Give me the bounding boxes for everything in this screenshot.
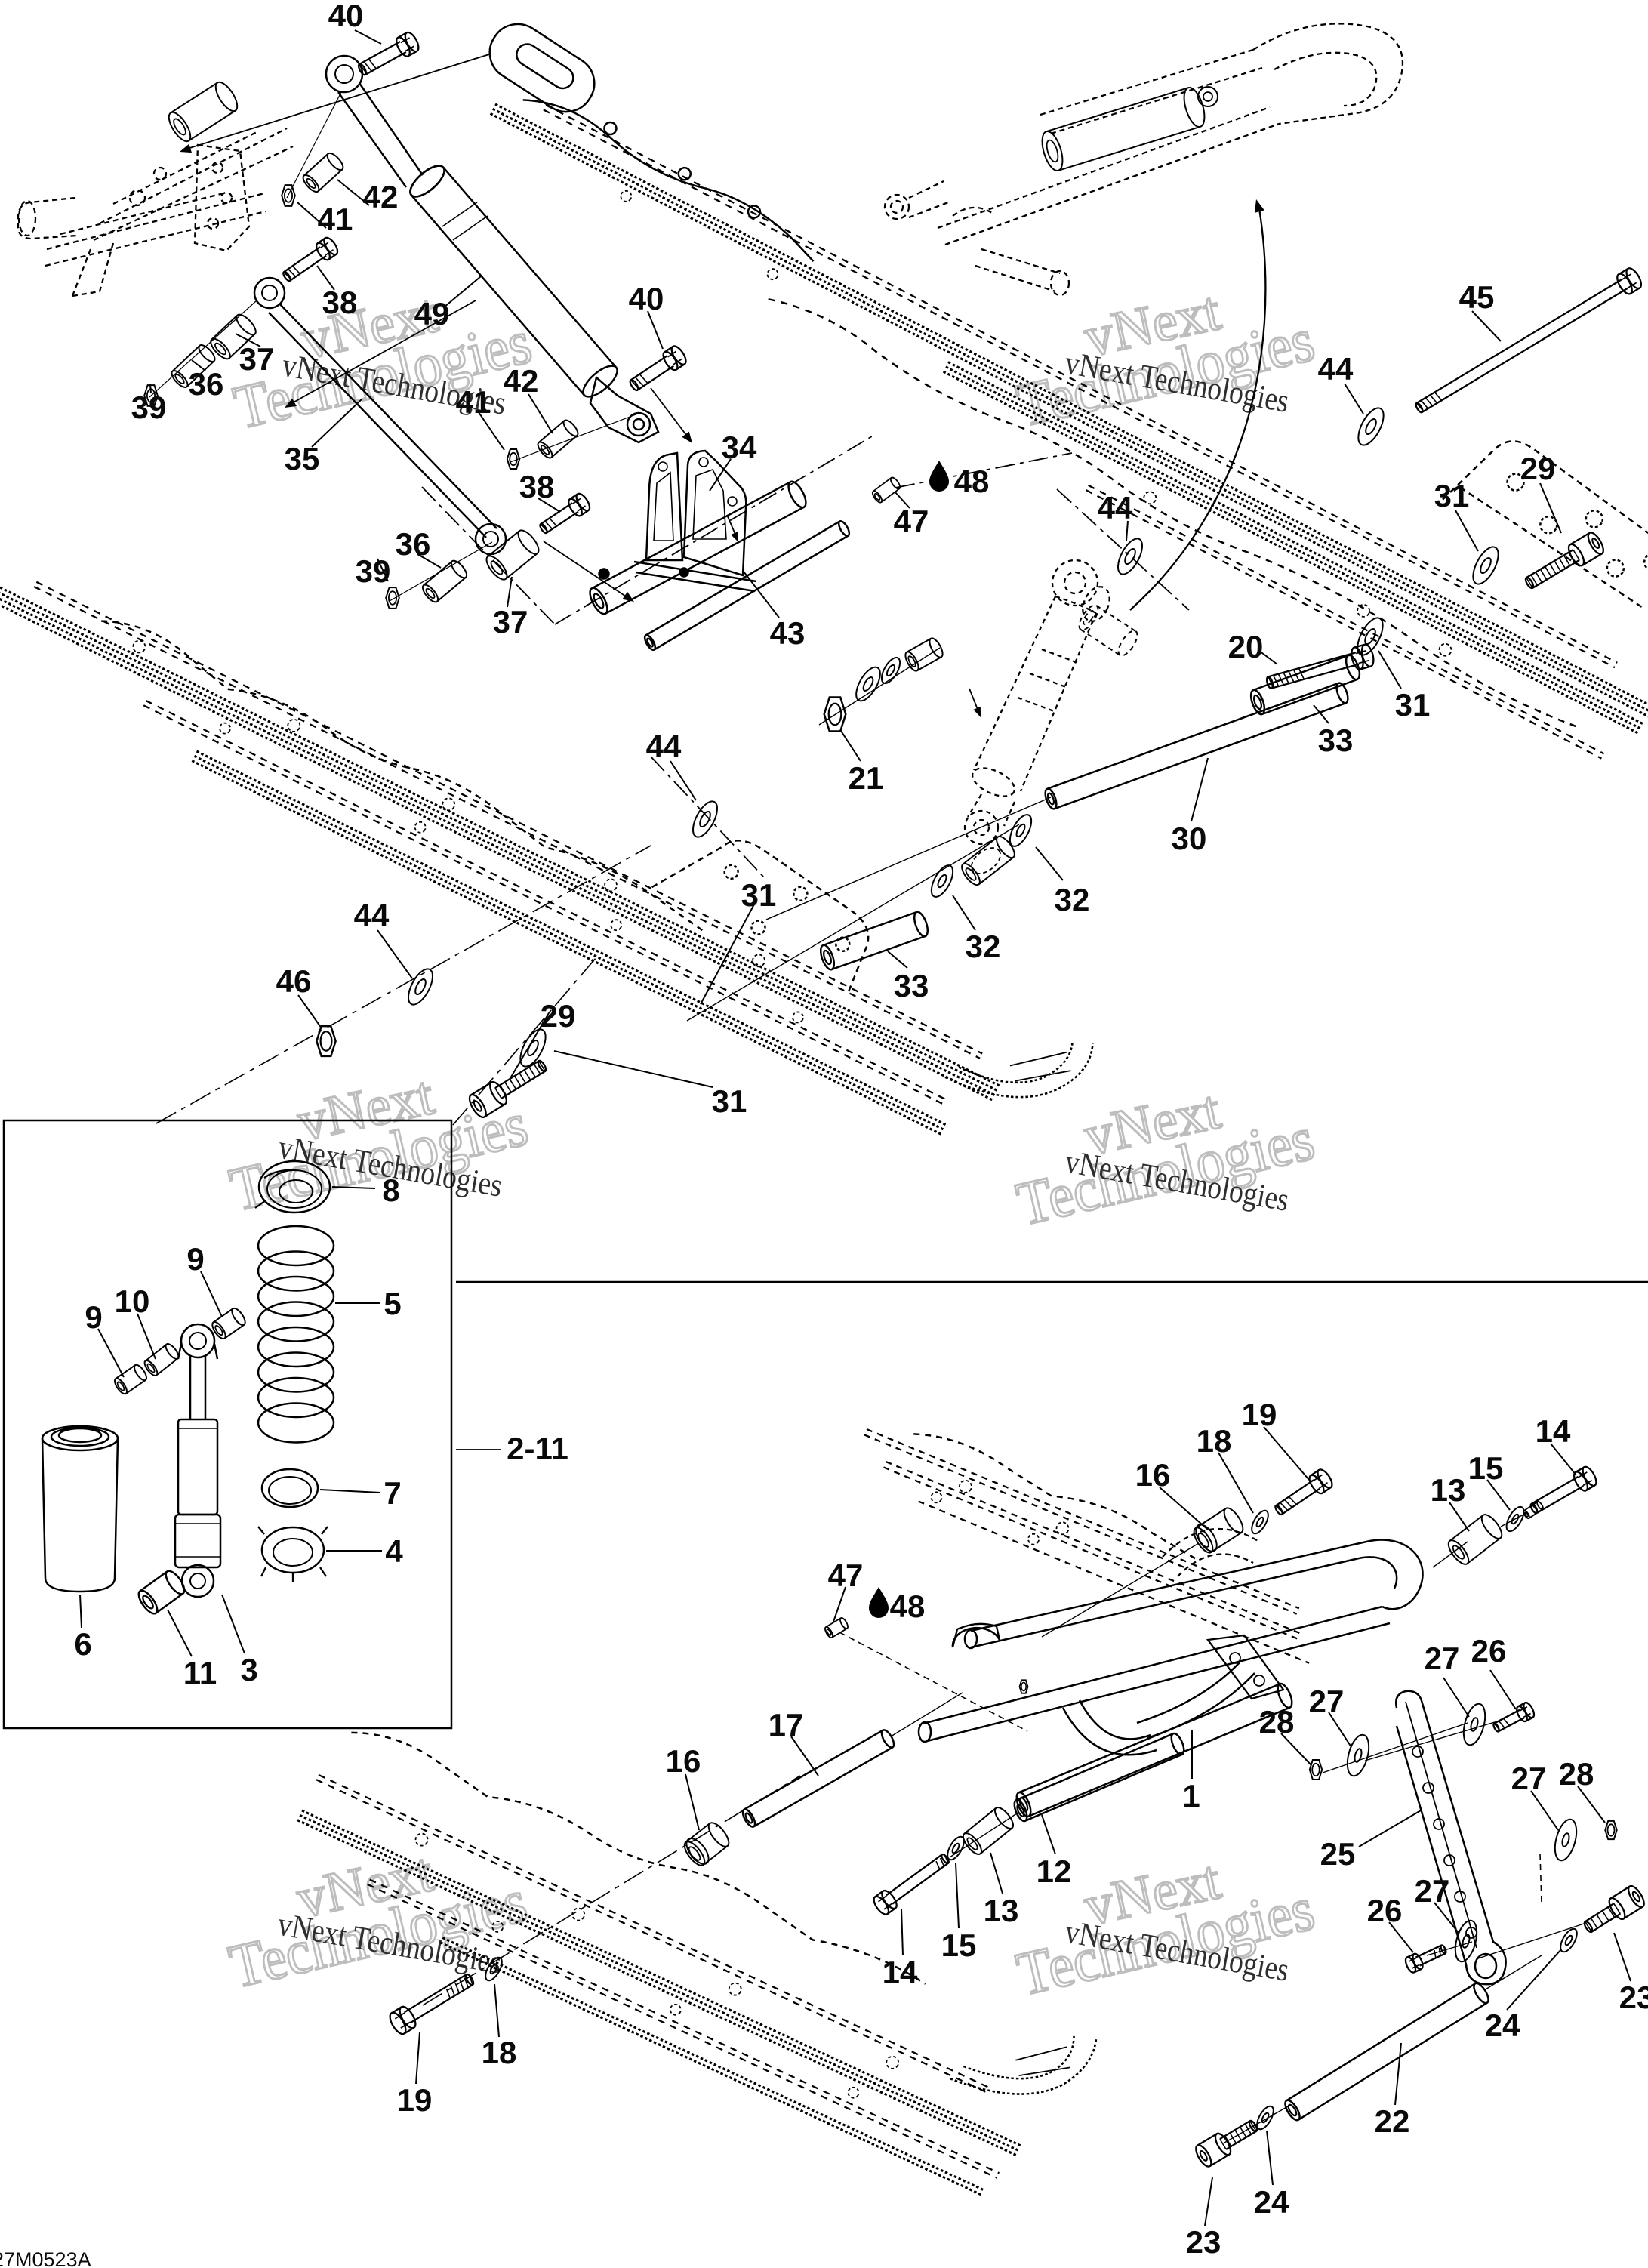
svg-text:36: 36 — [189, 366, 224, 402]
svg-text:26: 26 — [1367, 1893, 1403, 1928]
svg-text:25: 25 — [1320, 1836, 1356, 1872]
svg-text:44: 44 — [354, 898, 390, 933]
svg-text:16: 16 — [666, 1743, 701, 1779]
svg-text:27: 27 — [1425, 1641, 1460, 1676]
svg-text:24: 24 — [1485, 2008, 1520, 2043]
svg-text:40: 40 — [629, 281, 664, 316]
svg-text:22: 22 — [1375, 2103, 1410, 2139]
svg-text:19: 19 — [397, 2082, 433, 2118]
svg-text:15: 15 — [941, 1927, 977, 1963]
svg-text:31: 31 — [712, 1083, 747, 1119]
svg-text:4: 4 — [385, 1533, 403, 1569]
svg-text:20: 20 — [1228, 629, 1264, 664]
svg-text:44: 44 — [1098, 490, 1133, 525]
svg-text:28: 28 — [1559, 1756, 1594, 1792]
svg-text:33: 33 — [1318, 723, 1354, 758]
svg-text:16: 16 — [1135, 1457, 1171, 1493]
svg-text:41: 41 — [456, 384, 491, 420]
svg-text:37: 37 — [493, 604, 528, 639]
svg-text:17: 17 — [769, 1707, 804, 1743]
svg-text:49: 49 — [414, 296, 450, 331]
svg-text:26: 26 — [1471, 1633, 1507, 1669]
svg-text:42: 42 — [363, 179, 399, 214]
svg-text:30: 30 — [1172, 821, 1207, 856]
svg-text:45: 45 — [1459, 279, 1495, 315]
svg-text:38: 38 — [322, 285, 358, 320]
svg-text:27M0523A: 27M0523A — [0, 2248, 91, 2268]
svg-text:3: 3 — [240, 1652, 257, 1687]
svg-text:23: 23 — [1186, 2224, 1221, 2260]
svg-text:13: 13 — [1431, 1472, 1466, 1508]
svg-text:47: 47 — [828, 1558, 864, 1593]
svg-text:21: 21 — [849, 760, 884, 796]
svg-text:6: 6 — [74, 1626, 91, 1662]
svg-text:24: 24 — [1254, 2184, 1289, 2220]
svg-text:7: 7 — [384, 1475, 401, 1511]
svg-text:44: 44 — [1318, 351, 1354, 387]
svg-text:48: 48 — [890, 1589, 926, 1624]
svg-text:37: 37 — [239, 341, 275, 377]
svg-text:29: 29 — [541, 998, 576, 1034]
svg-text:28: 28 — [1259, 1704, 1295, 1740]
svg-text:29: 29 — [1520, 451, 1556, 486]
svg-text:33: 33 — [894, 968, 929, 1003]
svg-text:9: 9 — [186, 1241, 204, 1277]
svg-text:27: 27 — [1309, 1684, 1345, 1719]
svg-text:1: 1 — [1182, 1778, 1200, 1813]
svg-text:39: 39 — [131, 390, 167, 425]
svg-text:9: 9 — [85, 1299, 102, 1335]
svg-text:2-11: 2-11 — [507, 1431, 568, 1466]
svg-text:15: 15 — [1468, 1450, 1504, 1486]
svg-text:48: 48 — [954, 464, 990, 499]
svg-text:47: 47 — [894, 504, 929, 539]
svg-text:35: 35 — [285, 441, 320, 476]
svg-text:23: 23 — [1619, 1980, 1648, 2015]
svg-text:27: 27 — [1511, 1761, 1547, 1796]
svg-text:10: 10 — [115, 1283, 150, 1319]
svg-text:31: 31 — [1395, 687, 1431, 723]
svg-text:40: 40 — [328, 0, 364, 33]
svg-text:18: 18 — [482, 2035, 517, 2070]
svg-text:8: 8 — [382, 1173, 399, 1208]
svg-text:42: 42 — [504, 363, 539, 399]
svg-text:43: 43 — [770, 615, 806, 651]
svg-text:41: 41 — [318, 202, 353, 237]
svg-text:36: 36 — [396, 526, 431, 562]
svg-text:19: 19 — [1242, 1397, 1277, 1432]
svg-text:32: 32 — [966, 929, 1001, 964]
svg-text:31: 31 — [741, 877, 777, 913]
svg-text:31: 31 — [1434, 478, 1470, 513]
svg-text:5: 5 — [384, 1286, 401, 1321]
svg-text:32: 32 — [1055, 882, 1090, 917]
svg-text:14: 14 — [883, 1955, 918, 1990]
svg-text:11: 11 — [183, 1655, 217, 1690]
svg-text:46: 46 — [276, 963, 312, 999]
svg-text:12: 12 — [1037, 1854, 1072, 1889]
svg-text:34: 34 — [722, 430, 757, 465]
svg-text:44: 44 — [646, 729, 682, 764]
svg-text:13: 13 — [984, 1893, 1019, 1928]
svg-text:38: 38 — [519, 469, 555, 504]
svg-text:27: 27 — [1415, 1873, 1450, 1909]
svg-text:14: 14 — [1536, 1413, 1571, 1449]
svg-text:18: 18 — [1197, 1423, 1232, 1459]
svg-text:39: 39 — [356, 553, 391, 589]
